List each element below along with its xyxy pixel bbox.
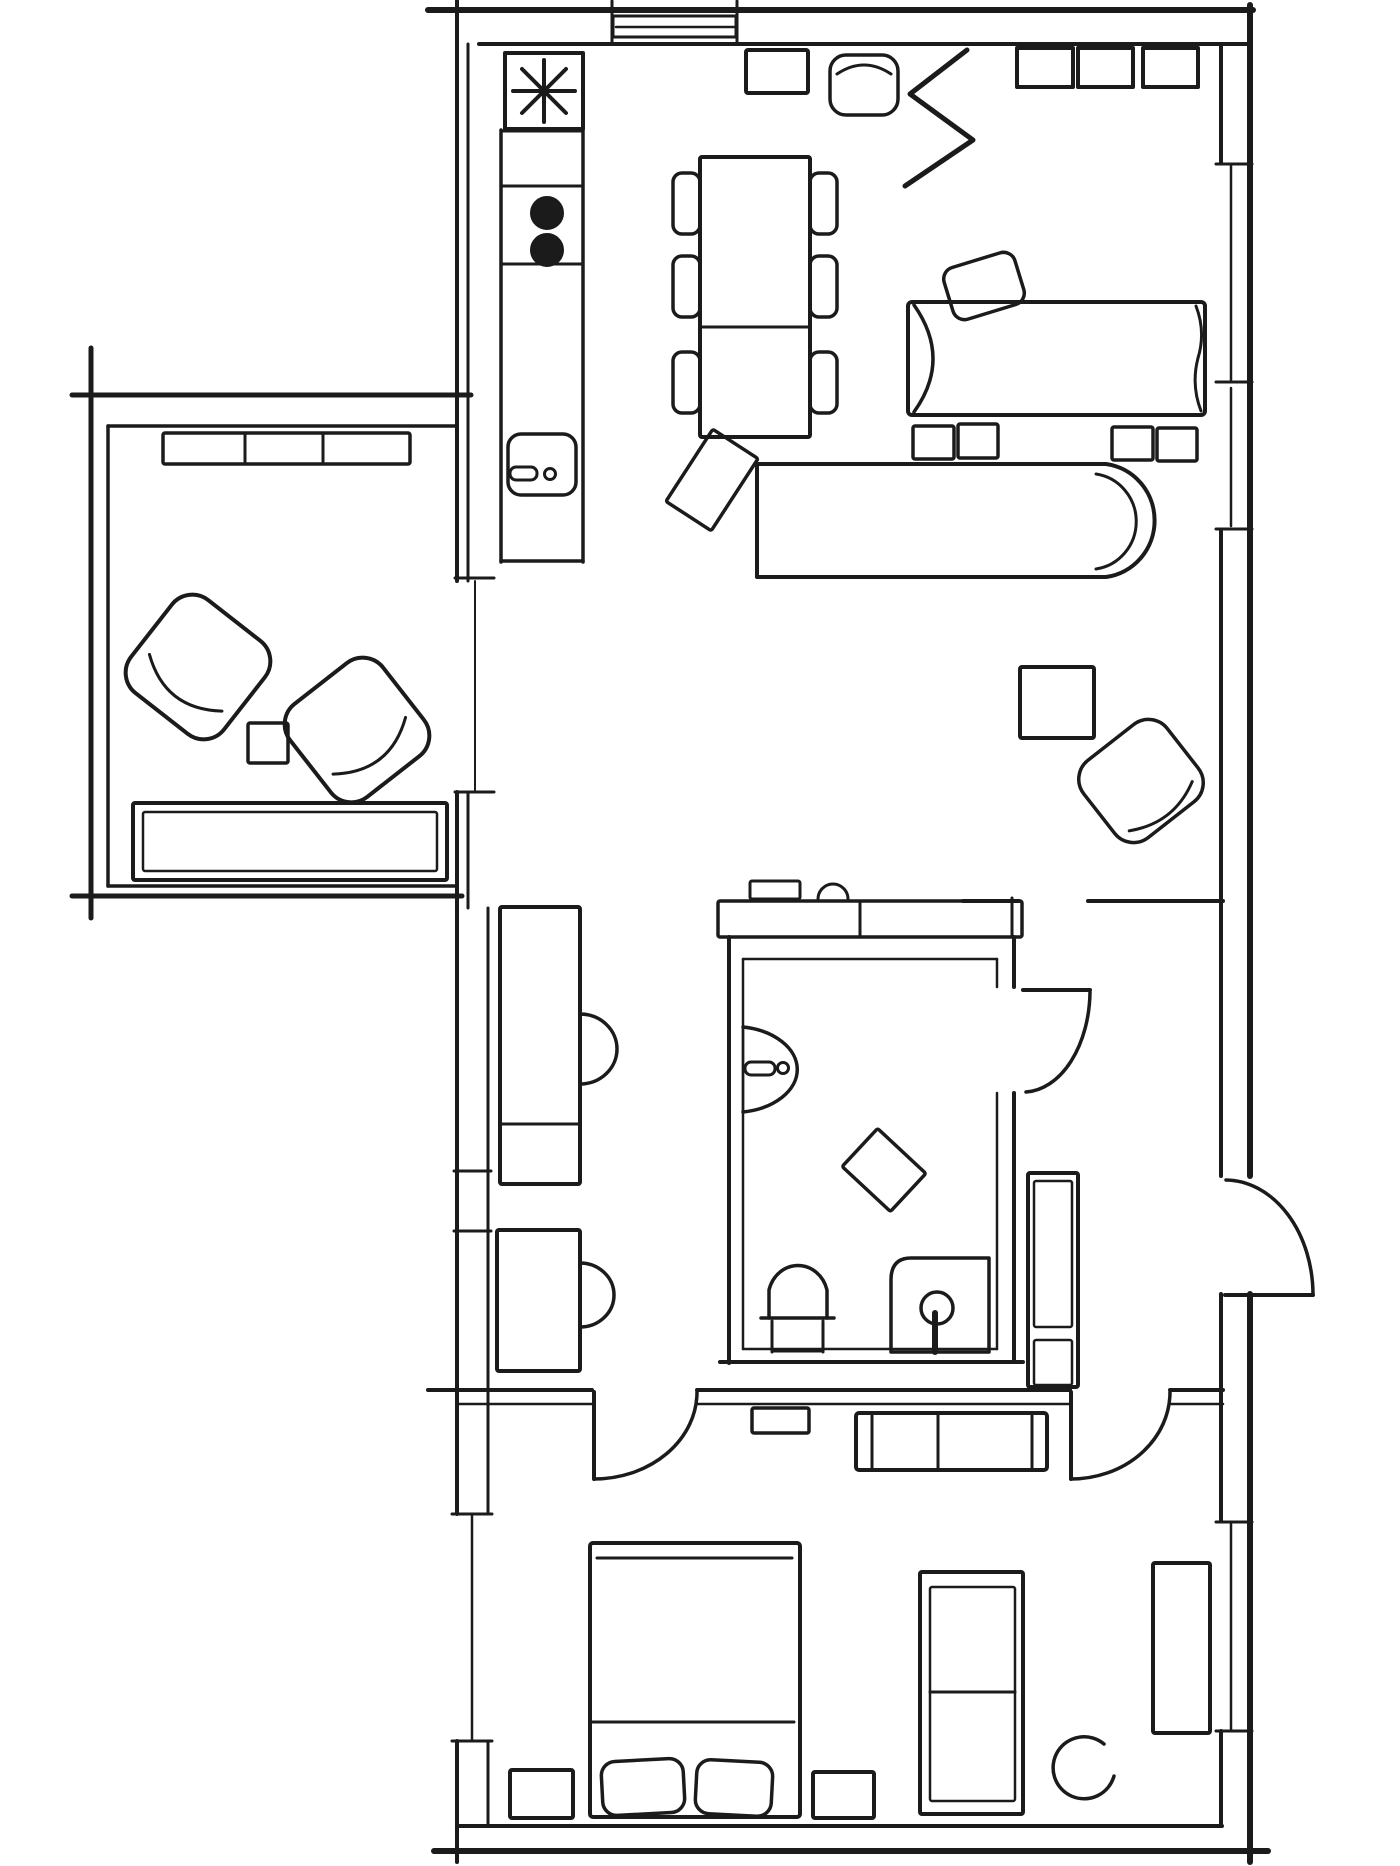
hall-tall-cabinet-inner-lower <box>1034 1340 1072 1385</box>
corridor-desk-upper <box>500 907 580 1184</box>
dining-chair-left-2 <box>673 256 700 317</box>
bath-counter-item-box <box>750 881 800 899</box>
studio-storage-box-4 <box>1157 428 1197 461</box>
bedroom-door-east-arc <box>1071 1392 1170 1479</box>
annex-armchair-left-back-line <box>139 654 222 724</box>
studio-small-table <box>746 50 808 93</box>
kitchen-burner-2 <box>531 234 563 266</box>
bedroom-pillow-left <box>601 1758 686 1816</box>
shelf-box-1 <box>1017 48 1073 87</box>
kitchen-sink-faucet <box>510 467 537 480</box>
annex-bench <box>133 803 447 880</box>
studio-daybed-inner-arm-arc <box>1096 474 1136 569</box>
corridor-desk-lower <box>497 1230 580 1371</box>
living-armchair-back-line <box>1129 782 1199 840</box>
dining-chair-right-1 <box>810 173 837 234</box>
studio-bed <box>908 302 1205 415</box>
bath-door-arc <box>1026 992 1090 1092</box>
annex-bench-inner <box>143 812 437 871</box>
studio-folding-screen <box>905 50 973 186</box>
living-square-table <box>1020 667 1094 738</box>
floorplan-svg <box>0 0 1400 1866</box>
bedroom-pillow-right <box>695 1759 774 1817</box>
annex-side-table <box>248 723 288 763</box>
bath-basin-knob <box>778 1063 789 1074</box>
dining-chair-left-1 <box>673 173 700 234</box>
dining-chair-left-3 <box>673 352 700 413</box>
bath-shower-tray <box>891 1258 989 1352</box>
studio-bed-pillow <box>941 249 1028 322</box>
floorplan-sheet <box>0 0 1400 1866</box>
hall-tall-cabinet <box>1028 1173 1078 1387</box>
bedroom-nightstand-right <box>813 1772 874 1818</box>
annex-armchair-right-back-line <box>333 717 416 787</box>
studio-daybed <box>757 464 1155 577</box>
shelf-box-2 <box>1078 48 1133 87</box>
bath-rotated-mat <box>842 1128 926 1211</box>
bedroom-sofa <box>856 1413 1047 1470</box>
entry-door-arc <box>1226 1180 1313 1295</box>
bedroom-wardrobe-inner <box>930 1587 1015 1801</box>
bath-toilet-bowl <box>769 1265 827 1318</box>
annex-armchair-right <box>274 647 440 813</box>
bedroom-door-west-arc <box>594 1392 697 1479</box>
dining-chair-right-2 <box>810 256 837 317</box>
studio-bed-foot-wave <box>1195 306 1201 411</box>
kitchen-sink-knob <box>545 469 556 480</box>
studio-storage-box-1 <box>913 426 954 459</box>
kitchen-sink <box>508 434 576 495</box>
studio-storage-box-3 <box>1112 427 1153 460</box>
bath-counter <box>718 901 1022 937</box>
dining-table <box>700 157 810 437</box>
corridor-desk-upper-chair <box>580 1014 617 1084</box>
bedroom-nightstand-left <box>510 1770 573 1818</box>
kitchen-burner-1 <box>531 197 563 229</box>
annex-sideboard <box>163 433 410 464</box>
hall-tall-cabinet-inner-upper <box>1034 1181 1072 1327</box>
bath-basin-faucet <box>745 1062 775 1075</box>
dining-chair-right-3 <box>810 352 837 413</box>
bedroom-side-cabinet <box>1153 1563 1210 1733</box>
bedroom-wall-shelf <box>752 1408 809 1433</box>
corridor-desk-lower-chair <box>580 1263 614 1327</box>
studio-storage-box-2 <box>958 424 998 458</box>
studio-armchair-back-line <box>837 65 891 74</box>
shelf-box-3 <box>1143 48 1198 87</box>
bedroom-stool-circle <box>1053 1737 1114 1799</box>
annex-armchair-left <box>115 584 281 750</box>
dining-rug <box>666 429 758 531</box>
studio-bed-headboard-curve <box>914 305 933 412</box>
bath-counter-item-dome <box>818 884 848 899</box>
